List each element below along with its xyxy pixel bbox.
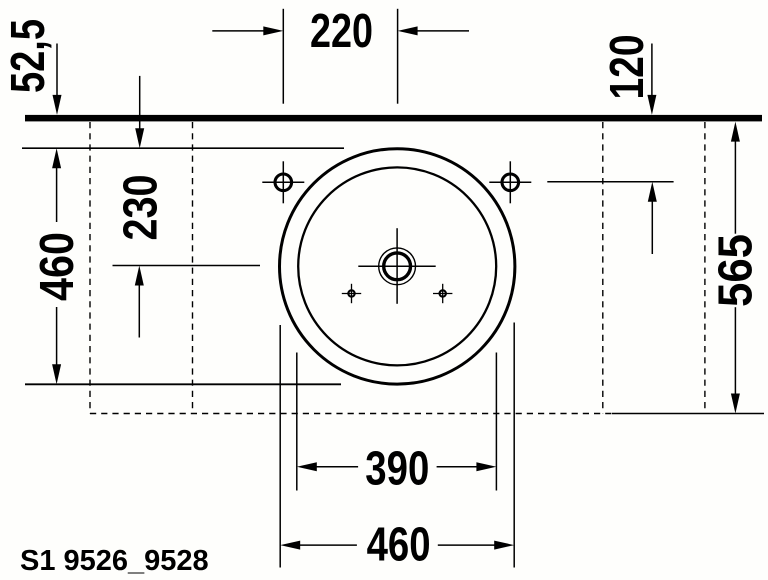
svg-text:220: 220 <box>310 5 373 58</box>
svg-text:390: 390 <box>365 443 429 496</box>
svg-text:230: 230 <box>115 175 168 241</box>
svg-text:460: 460 <box>31 232 84 301</box>
svg-text:120: 120 <box>601 35 654 100</box>
svg-text:460: 460 <box>367 519 431 572</box>
svg-text:565: 565 <box>709 234 762 307</box>
svg-text:52,5: 52,5 <box>2 19 55 93</box>
svg-text:S1 9526_9528: S1 9526_9528 <box>20 545 209 577</box>
